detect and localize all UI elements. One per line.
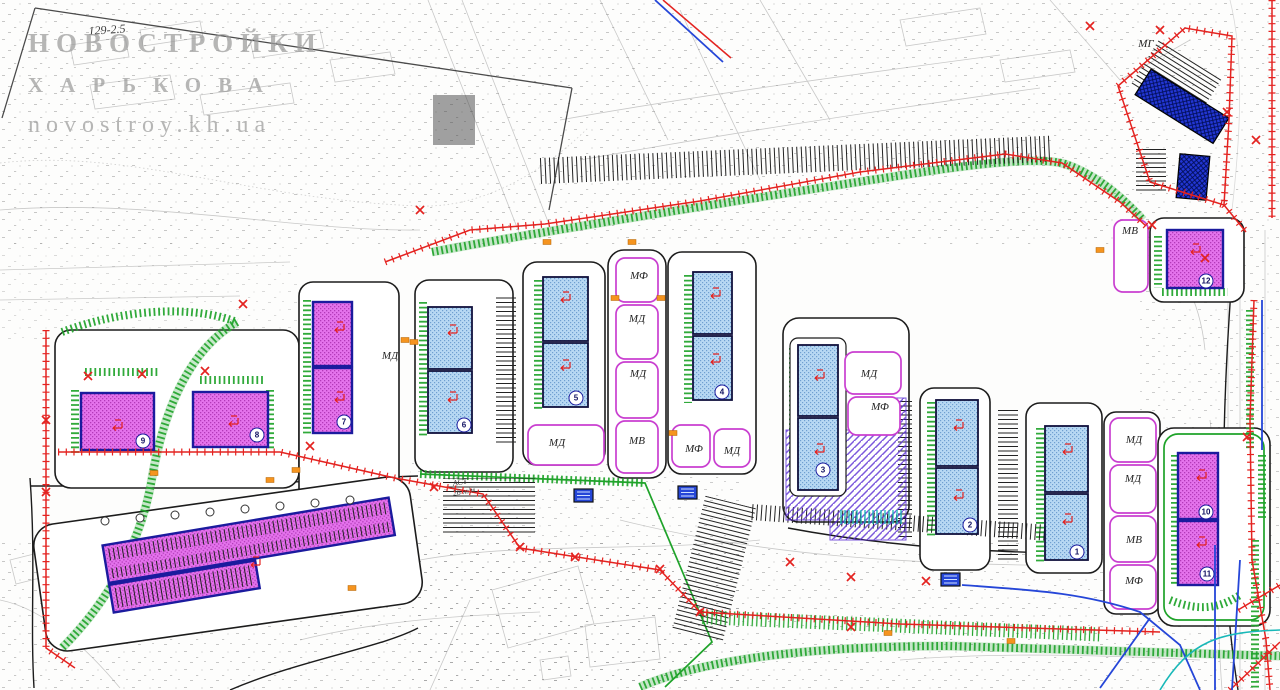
transformer-box [678,486,697,499]
orange-marker [1007,639,1015,644]
building-10-11 [1178,453,1218,585]
zone-label-МД: МД [1126,434,1142,446]
orange-marker [543,240,551,245]
topo-building-block [433,95,475,145]
building-12 [1167,230,1223,288]
building-number-6: 6 [457,418,472,433]
zone-label-МВ: МВ [1126,534,1142,546]
building-number-4: 4 [715,385,730,400]
orange-marker [292,468,300,473]
zone-label-МФ: МФ [871,401,889,413]
building-number-12: 12 [1199,274,1214,289]
building-number-2: 2 [963,518,978,533]
orange-marker [401,338,409,343]
building-number-10: 10 [1199,505,1214,520]
orange-marker [611,296,619,301]
building-number-8: 8 [250,428,265,443]
zone-label-МВ: МВ [1122,225,1138,237]
building-number-1: 1 [1070,545,1085,560]
building-number-9: 9 [136,434,151,449]
building-4 [693,272,732,400]
orange-marker [266,478,274,483]
transformer-box [941,573,960,586]
orange-marker [657,296,665,301]
orange-marker [628,240,636,245]
zone-label-МД: МД [1125,473,1141,485]
zone-label-МД: МД [549,437,565,449]
orange-marker [884,631,892,636]
zone-label-МФ: МФ [630,270,648,282]
zone-label-МД: МД [861,368,877,380]
site-plan-drawing [0,0,1280,690]
zone-label-МД: МД [629,313,645,325]
orange-marker [669,431,677,436]
zone-label-МД: МД [630,368,646,380]
building-7 [313,302,352,433]
zone-label-МФ: МФ [1125,575,1143,587]
zone-label-МГ: МГ [1138,38,1153,50]
building-number-7: 7 [337,415,352,430]
orange-marker [1096,248,1104,253]
zone-label-МВ: МВ [629,435,645,447]
building-number-5: 5 [569,391,584,406]
orange-marker [348,586,356,591]
zone-label-МФ: МФ [685,443,703,455]
annotation-text: 129-2.5 [88,21,126,39]
zone-label-МД: МД [724,445,740,457]
orange-marker [410,340,418,345]
transformer-box [574,489,593,502]
master-plan-map: МДМФМДМДМВМДМФМДМДМФМДМДМВМФМВМГ12345678… [0,0,1280,690]
zone-label-МД: МД [382,350,398,362]
building-number-3: 3 [816,463,831,478]
building-number-11: 11 [1200,567,1215,582]
orange-marker [150,471,158,476]
